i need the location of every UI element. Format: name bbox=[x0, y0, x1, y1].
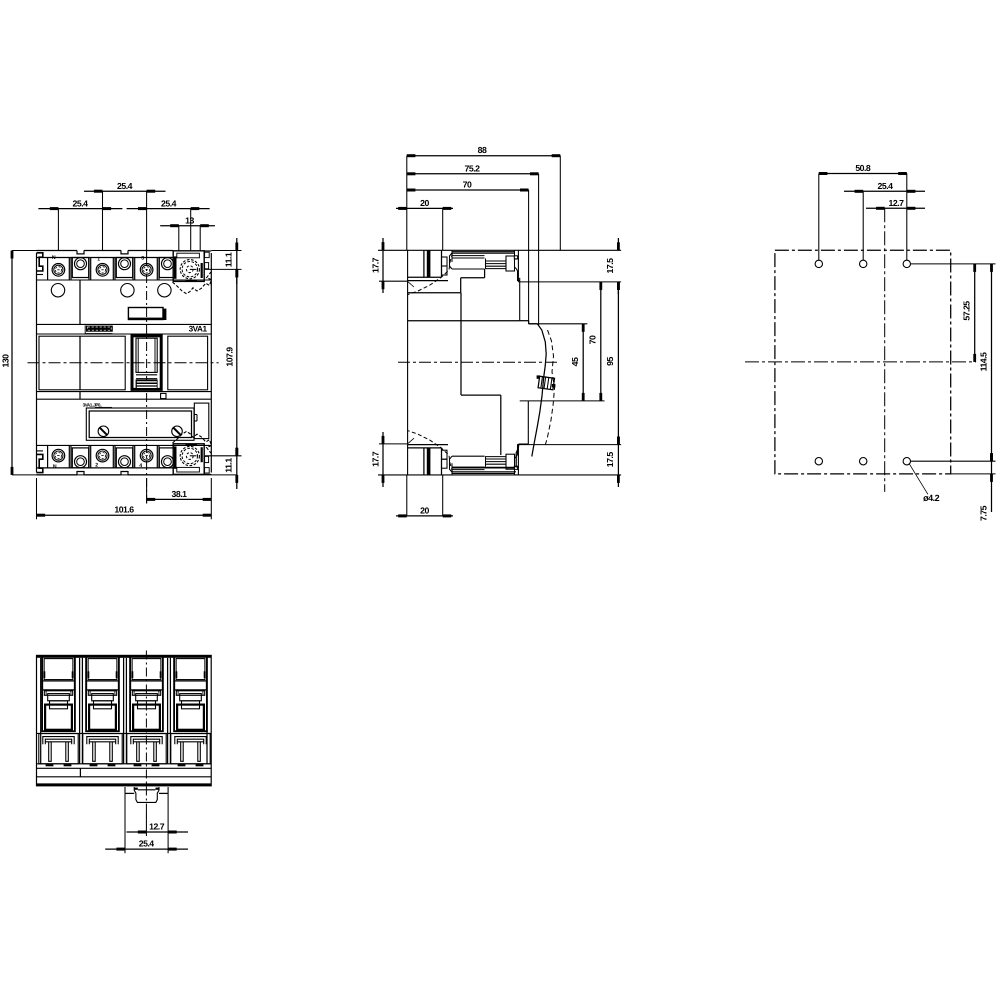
svg-text:88: 88 bbox=[478, 145, 487, 155]
svg-text:17.5: 17.5 bbox=[605, 452, 615, 468]
svg-text:107.9: 107.9 bbox=[225, 347, 235, 367]
svg-text:25.4: 25.4 bbox=[117, 181, 133, 191]
svg-text:11.1: 11.1 bbox=[224, 458, 234, 473]
svg-text:45: 45 bbox=[570, 357, 580, 366]
svg-text:25.4: 25.4 bbox=[73, 198, 89, 208]
svg-text:70: 70 bbox=[463, 180, 472, 190]
svg-text:3VA1..JP0..: 3VA1..JP0.. bbox=[83, 402, 102, 407]
svg-text:ø4.2: ø4.2 bbox=[923, 493, 940, 503]
svg-text:57.25: 57.25 bbox=[962, 301, 972, 321]
svg-text:38.1: 38.1 bbox=[172, 489, 188, 499]
svg-text:17.7: 17.7 bbox=[371, 451, 381, 467]
svg-text:17.5: 17.5 bbox=[605, 258, 615, 274]
svg-text:25.4: 25.4 bbox=[139, 839, 155, 849]
svg-text:3VA1: 3VA1 bbox=[189, 324, 208, 333]
svg-text:12.7: 12.7 bbox=[149, 822, 165, 832]
svg-text:130: 130 bbox=[1, 354, 11, 368]
svg-text:17.7: 17.7 bbox=[371, 257, 381, 273]
svg-text:101.6: 101.6 bbox=[114, 505, 134, 515]
svg-text:13: 13 bbox=[185, 216, 194, 226]
svg-text:7.75: 7.75 bbox=[979, 505, 989, 521]
svg-text:114.5: 114.5 bbox=[979, 352, 989, 371]
svg-text:20: 20 bbox=[420, 198, 429, 208]
svg-text:70: 70 bbox=[588, 335, 598, 344]
svg-text:N: N bbox=[53, 464, 57, 470]
svg-text:3: 3 bbox=[141, 256, 144, 262]
svg-text:12.7: 12.7 bbox=[889, 198, 905, 208]
svg-text:50.8: 50.8 bbox=[855, 163, 871, 173]
svg-text:75.2: 75.2 bbox=[465, 163, 481, 173]
svg-text:95: 95 bbox=[605, 357, 615, 366]
svg-text:20: 20 bbox=[420, 505, 429, 515]
svg-text:11.1: 11.1 bbox=[224, 252, 234, 267]
svg-text:25.4: 25.4 bbox=[878, 181, 894, 191]
svg-text:25.4: 25.4 bbox=[161, 198, 177, 208]
